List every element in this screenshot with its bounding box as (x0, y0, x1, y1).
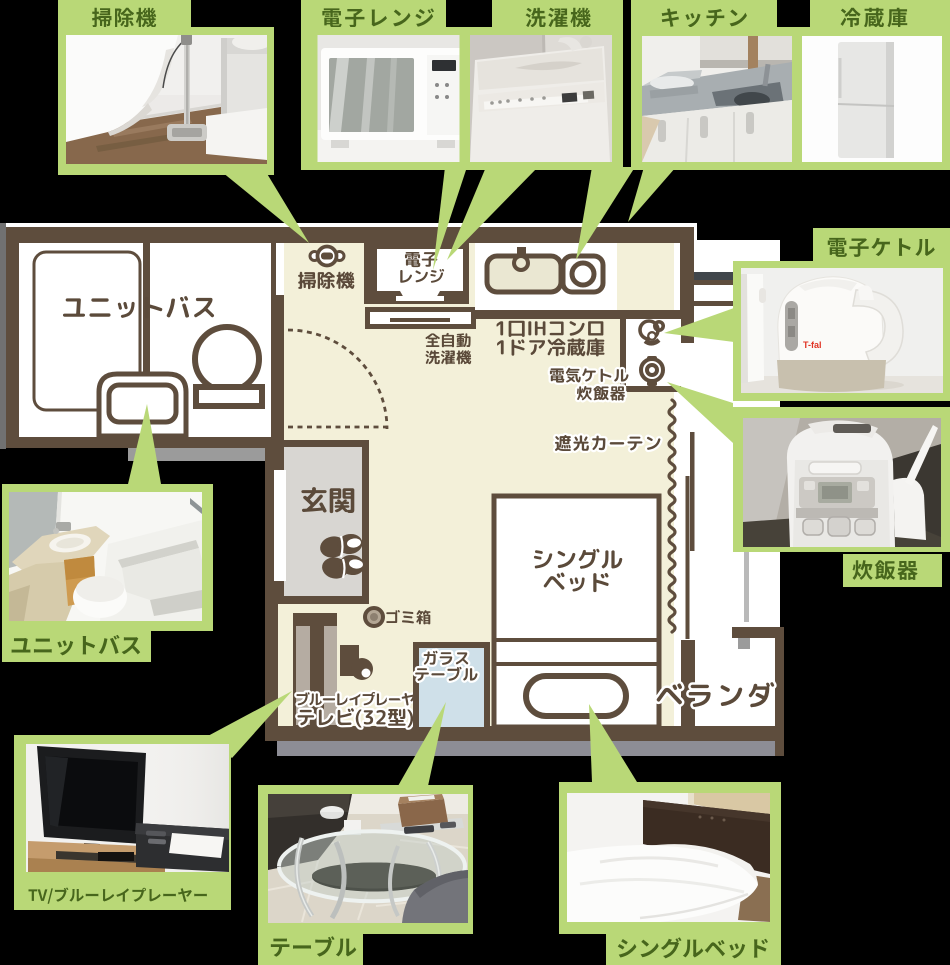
svg-text:T-fal: T-fal (803, 340, 822, 350)
